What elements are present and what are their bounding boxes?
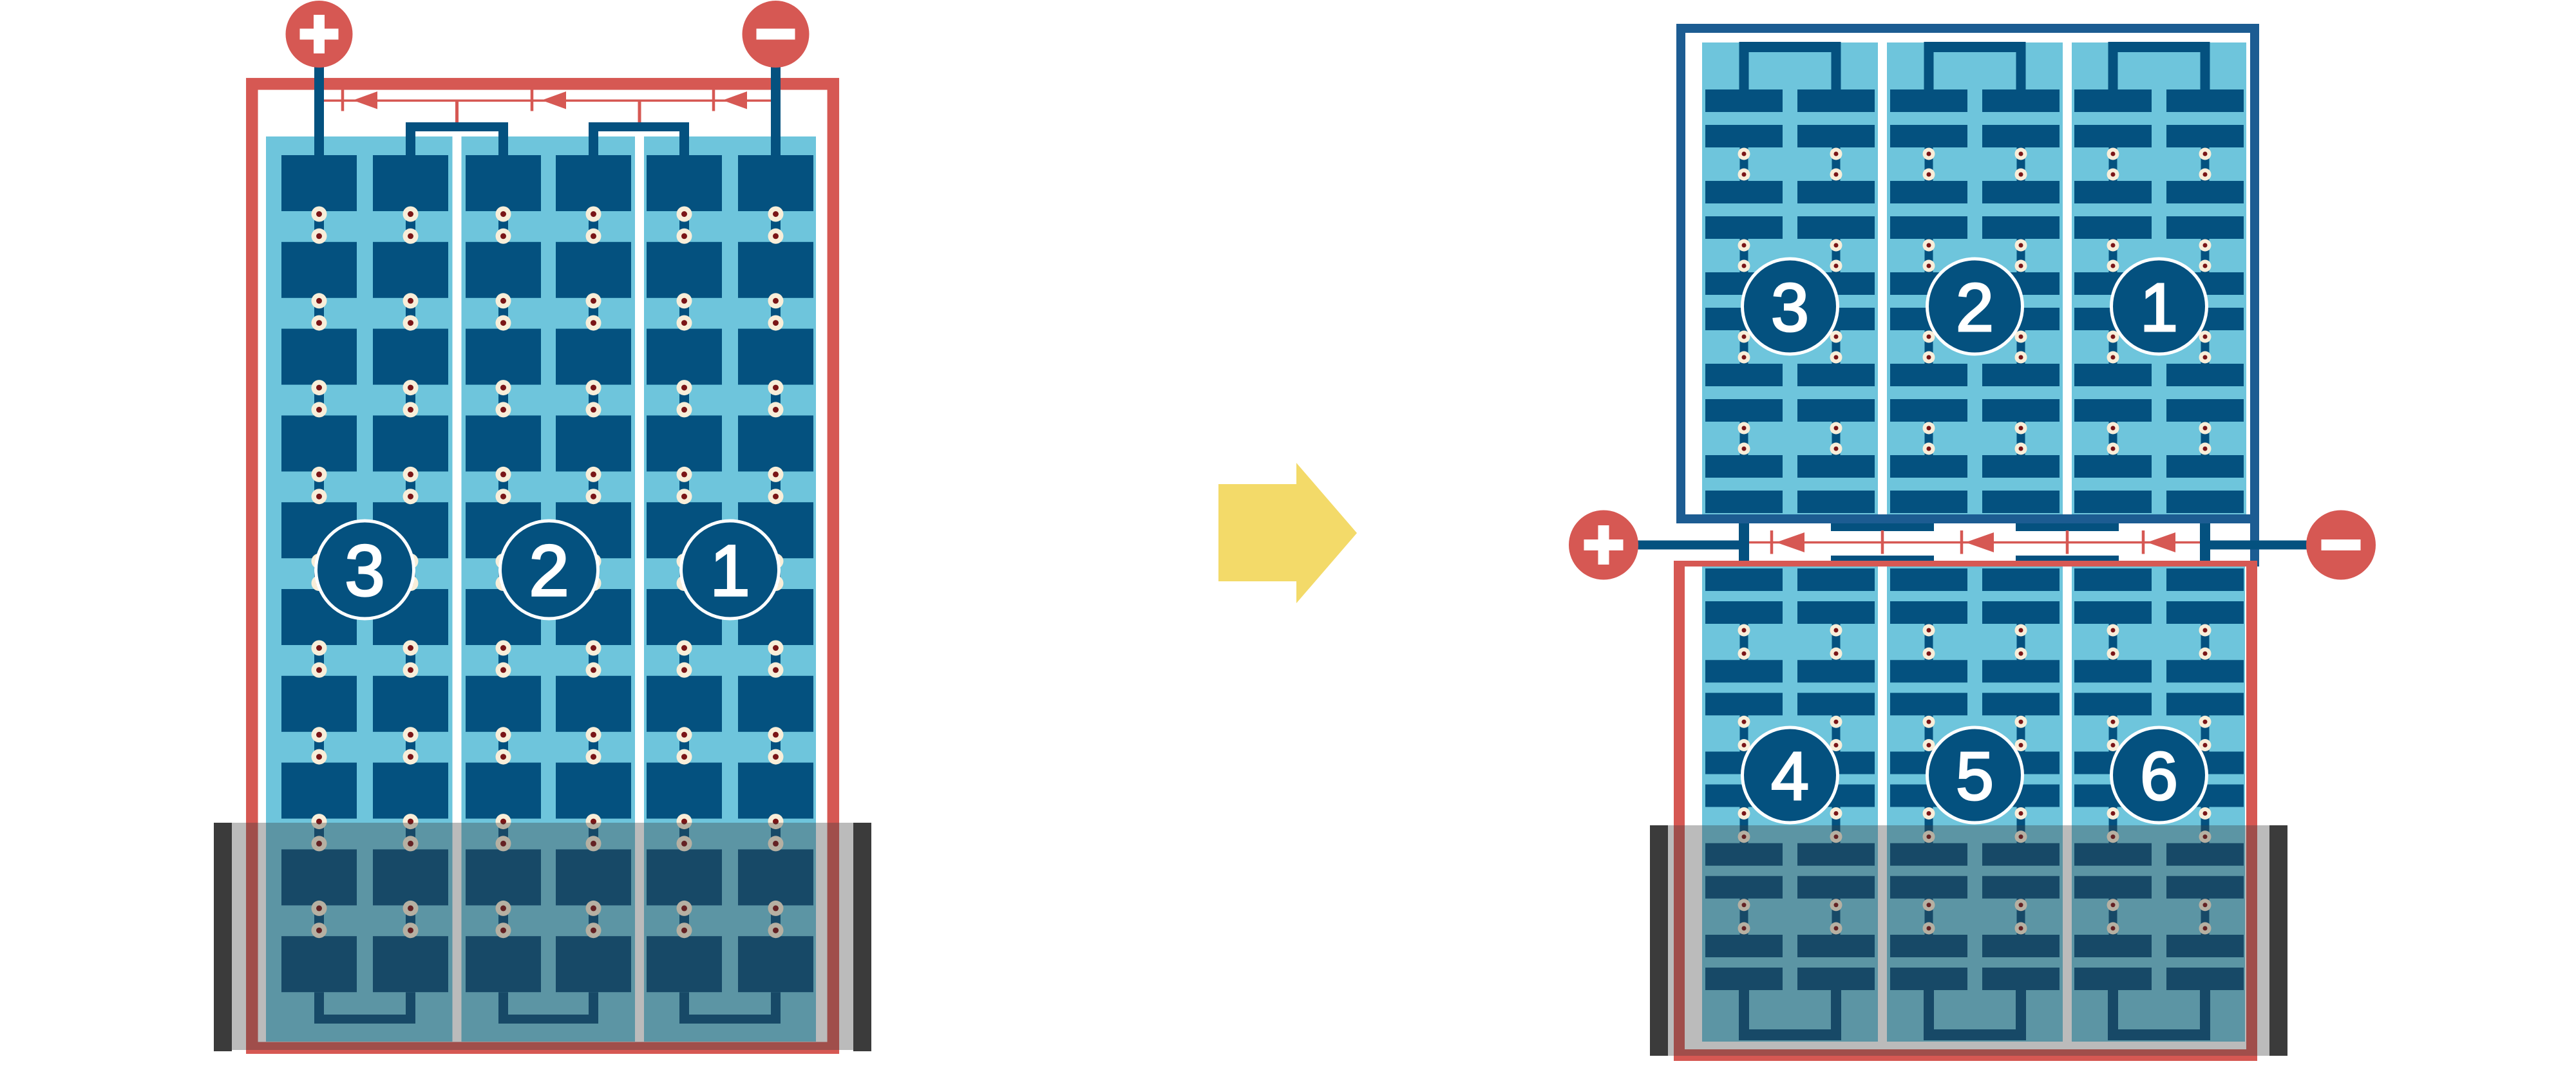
svg-text:2: 2 bbox=[1956, 270, 1994, 346]
svg-text:5: 5 bbox=[1956, 738, 1994, 814]
svg-text:3: 3 bbox=[1771, 270, 1809, 346]
svg-text:1: 1 bbox=[2140, 270, 2178, 346]
svg-text:4: 4 bbox=[1771, 738, 1809, 814]
svg-text:1: 1 bbox=[710, 530, 750, 611]
svg-text:3: 3 bbox=[345, 530, 384, 611]
svg-text:6: 6 bbox=[2140, 738, 2178, 814]
svg-text:2: 2 bbox=[529, 530, 569, 611]
